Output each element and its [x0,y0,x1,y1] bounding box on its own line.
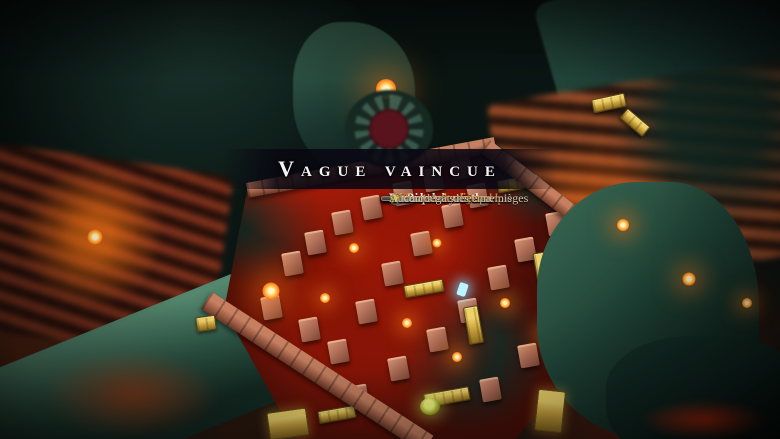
gold-wall-block [463,305,484,345]
gold-wall-block [403,279,445,299]
trap-flame [500,298,510,308]
brick-pillar [426,327,449,353]
trap-flame [452,352,462,362]
trap-flame [433,239,442,248]
torch-flame [683,273,696,286]
brick-pillar [327,339,350,365]
trap-flame [349,243,359,253]
brick-pillar [381,261,404,287]
trap-flame [263,283,280,300]
torch-flame [742,298,752,308]
trap-flame [320,293,330,303]
game-viewport[interactable]: Vague vaincue EXP de labyrinthe Monter d… [0,0,780,439]
brick-pillar [387,356,410,382]
wave-title: Vague vaincue [278,156,502,182]
brick-pillar [410,231,433,257]
brick-pillar [479,377,502,403]
torch-flame [617,219,629,231]
brick-pillar [441,203,464,229]
green-gem [420,398,440,415]
brick-pillar [360,195,383,221]
gold-chest [534,389,566,434]
brick-pillar [281,251,304,277]
wave-title-banner: Vague vaincue [222,149,558,189]
torch-flame [88,230,103,245]
brick-pillar [517,343,540,369]
brick-pillar [331,210,354,236]
reward-row-bonus-nodamage: Aucun dégât des ennemis [381,196,399,201]
gold-bar-stack [195,315,217,333]
brick-pillar [487,265,510,291]
brick-pillar [304,230,327,256]
lava-glow-bottom-left [40,350,220,439]
gold-chest [266,407,310,439]
brick-pillar [355,299,378,325]
lava-glow-bottom-right [640,400,770,439]
gold-wall-block [317,405,357,424]
brick-pillar [298,317,321,343]
trap-flame [402,318,412,328]
reward-label: Aucun dégât des ennemis [389,191,512,206]
